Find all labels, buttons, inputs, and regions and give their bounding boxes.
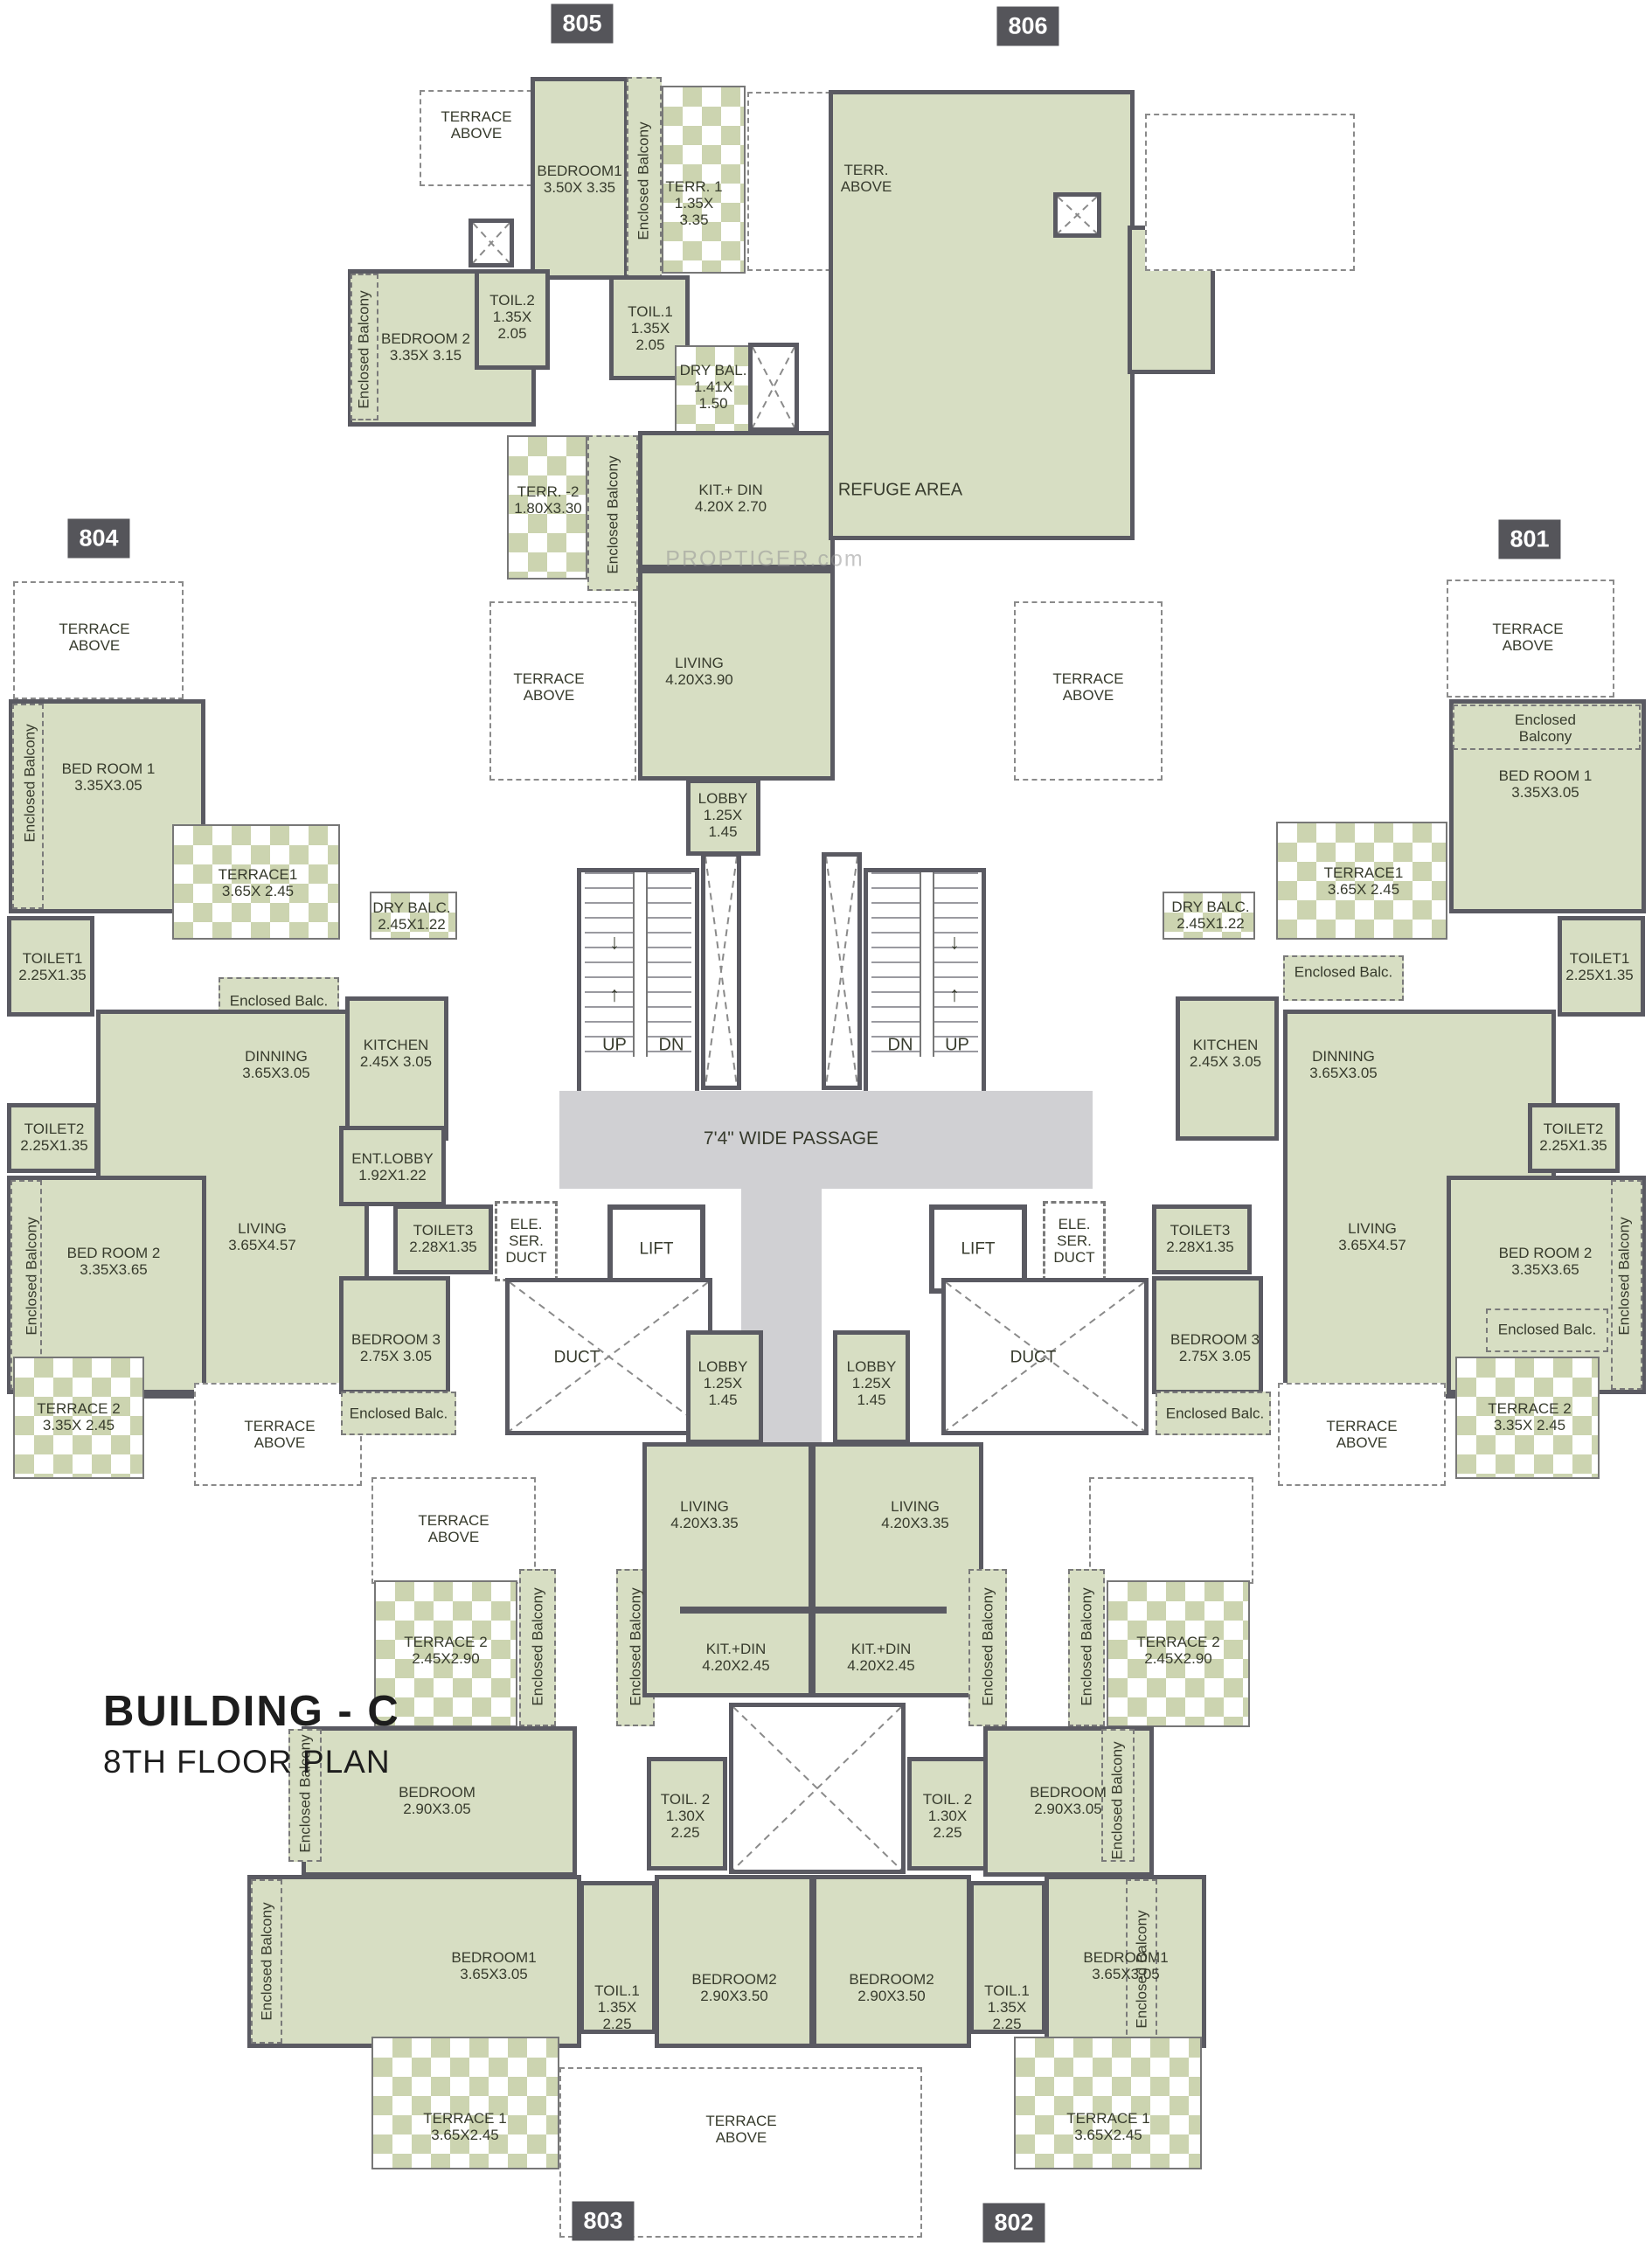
- label-kitchen: KITCHEN 2.45X 3.05: [1190, 1037, 1261, 1070]
- label-toilet3: TOILET3 2.28X1.35: [1166, 1222, 1234, 1255]
- label-terrace-1: TERRACE 1 3.65X2.45: [423, 2110, 506, 2143]
- label-lobby: LOBBY 1.25X 1.45: [698, 1358, 748, 1409]
- refuge-area: [829, 90, 1135, 540]
- label-terrace1: TERRACE1 3.65X 2.45: [1324, 864, 1404, 898]
- wall-segment: [680, 1607, 947, 1614]
- duct-shaft: [1053, 192, 1101, 238]
- label-toil-1: TOIL.1 1.35X 2.25: [984, 1982, 1030, 2033]
- unit-badge-803: 803: [572, 2202, 634, 2241]
- label-toil-1: TOIL.1 1.35X 2.25: [594, 1982, 640, 2033]
- label-duct: DUCT: [1010, 1348, 1057, 1366]
- label-toilet1: TOILET1 2.25X1.35: [1565, 950, 1634, 983]
- label-terr-1: TERR. 1 1.35X 3.35: [665, 178, 722, 229]
- label-refuge-area: REFUGE AREA: [838, 481, 962, 501]
- plan-subtitle: 8TH FLOOR PLAN: [103, 1744, 391, 1780]
- label-terrace: TERRACE ABOVE: [1492, 621, 1563, 654]
- label-enclosed-balcony: Enclosed Balcony: [258, 1902, 274, 2020]
- unit-badge-804: 804: [67, 519, 129, 559]
- label-terrace: TERRACE ABOVE: [441, 108, 511, 142]
- label-bed-room-2: BED ROOM 2 3.35X3.65: [1499, 1245, 1593, 1278]
- label-enclosed-balc-: Enclosed Balc.: [1166, 1405, 1264, 1421]
- label-up: UP: [602, 1036, 627, 1056]
- label-enclosed-balc-: Enclosed Balc.: [1498, 1321, 1596, 1337]
- label-bedroom1: BEDROOM1 3.65X3.05: [1083, 1949, 1168, 1982]
- label-dinning: DINNING 3.65X3.05: [242, 1048, 310, 1081]
- label--: ↑: [609, 982, 620, 1006]
- label-enclosed-balcony: Enclosed Balcony: [1492, 711, 1599, 745]
- label-terrace: TERRACE ABOVE: [705, 2113, 776, 2146]
- label-living: LIVING 3.65X4.57: [228, 1220, 296, 1253]
- label-living: LIVING 4.20X3.35: [881, 1498, 949, 1531]
- label-bedroom-3: BEDROOM 3 2.75X 3.05: [1170, 1331, 1260, 1364]
- room-bedroom2-803: [655, 1875, 814, 2048]
- label-toilet2: TOILET2 2.25X1.35: [20, 1121, 88, 1154]
- label-bedroom1: BEDROOM1 3.65X3.05: [451, 1949, 536, 1982]
- label--: ↓: [949, 930, 960, 954]
- label-bed-room-2: BED ROOM 2 3.35X3.65: [67, 1245, 161, 1278]
- label-living: LIVING 4.20X3.35: [670, 1498, 739, 1531]
- label-kitchen: KITCHEN 2.45X 3.05: [360, 1037, 432, 1070]
- label--: ↑: [949, 982, 960, 1006]
- label-terr-2: TERR. -2 1.80X3.30: [514, 483, 582, 517]
- label-terrace-2: TERRACE 2 3.35X 2.45: [1488, 1400, 1571, 1433]
- label-living: LIVING 4.20X3.90: [665, 655, 733, 688]
- label-ele-: ELE. SER. DUCT: [1053, 1216, 1094, 1267]
- label-dn: DN: [659, 1036, 684, 1056]
- label-toil-1: TOIL.1 1.35X 2.05: [628, 303, 673, 354]
- unit-badge-802: 802: [982, 2204, 1045, 2243]
- label-ele-: ELE. SER. DUCT: [505, 1216, 546, 1267]
- label-7-4-wide-passage: 7'4" WIDE PASSAGE: [704, 1128, 878, 1149]
- label-terrace: TERRACE ABOVE: [244, 1418, 315, 1451]
- label-bedroom1: BEDROOM1 3.50X 3.35: [537, 163, 621, 196]
- label-enclosed-balcony: Enclosed Balcony: [1078, 1587, 1094, 1705]
- duct-shaft: [822, 852, 862, 1090]
- terrace-1-803: [371, 2037, 559, 2169]
- label-terrace-2: TERRACE 2 2.45X2.90: [1136, 1634, 1219, 1667]
- terrace-above-area: [1145, 114, 1355, 271]
- label-bed-room-1: BED ROOM 1 3.35X3.05: [62, 760, 156, 794]
- label-bedroom2: BEDROOM2 2.90X3.50: [849, 1971, 934, 2004]
- label-lobby: LOBBY 1.25X 1.45: [847, 1358, 897, 1409]
- label-terrace: TERRACE ABOVE: [59, 621, 129, 654]
- label-living: LIVING 3.65X4.57: [1338, 1220, 1406, 1253]
- label-enclosed-balcony: Enclosed Balcony: [604, 455, 621, 573]
- label-terrace1: TERRACE1 3.65X 2.45: [219, 866, 298, 899]
- label-enclosed-balc-: Enclosed Balc.: [350, 1405, 448, 1421]
- label-dry-balc-: DRY BALC. 2.45X1.22: [1171, 899, 1249, 932]
- terrace-above-area: [1089, 1477, 1253, 1584]
- label-ent-lobby: ENT.LOBBY 1.92X1.22: [351, 1150, 434, 1184]
- label-enclosed-balc-: Enclosed Balc.: [230, 992, 328, 1009]
- label-enclosed-balcony: Enclosed Balcony: [23, 1217, 39, 1335]
- label-enclosed-balcony: Enclosed Balcony: [1133, 1910, 1149, 2028]
- label-kit-din: KIT.+ DIN 4.20X 2.70: [695, 482, 767, 515]
- label--: ↓: [609, 930, 620, 954]
- label-terr-: TERR. ABOVE: [841, 162, 892, 195]
- label-terrace: TERRACE ABOVE: [1052, 670, 1123, 704]
- label-kit-din: KIT.+DIN 4.20X2.45: [847, 1641, 915, 1674]
- label-bedroom: BEDROOM 2.90X3.05: [399, 1784, 475, 1817]
- room-bedroom2-802: [812, 1875, 971, 2048]
- party-wall: [809, 1442, 816, 1697]
- label-terrace: TERRACE ABOVE: [1326, 1418, 1397, 1451]
- label-bedroom: BEDROOM 2.90X3.05: [1030, 1784, 1107, 1817]
- terrace-1-802: [1014, 2037, 1202, 2169]
- label-toilet1: TOILET1 2.25X1.35: [18, 950, 87, 983]
- label-terrace: TERRACE ABOVE: [513, 670, 584, 704]
- label-toilet3: TOILET3 2.28X1.35: [409, 1222, 477, 1255]
- unit-badge-806: 806: [996, 7, 1059, 46]
- label-enclosed-balcony: Enclosed Balcony: [1615, 1217, 1632, 1335]
- duct-shaft: [748, 343, 799, 432]
- label-enclosed-balcony: Enclosed Balcony: [979, 1587, 996, 1705]
- label-up: UP: [945, 1036, 969, 1056]
- label-enclosed-balcony: Enclosed Balcony: [529, 1587, 545, 1705]
- label-enclosed-balc-: Enclosed Balc.: [1295, 963, 1392, 980]
- label-bedroom-3: BEDROOM 3 2.75X 3.05: [351, 1331, 441, 1364]
- label-bedroom2: BEDROOM2 2.90X3.50: [691, 1971, 776, 2004]
- label-terrace-2: TERRACE 2 3.35X 2.45: [37, 1400, 120, 1433]
- label-lift: LIFT: [961, 1239, 995, 1258]
- label-dinning: DINNING 3.65X3.05: [1309, 1048, 1378, 1081]
- label-terrace: TERRACE ABOVE: [418, 1512, 489, 1545]
- label-toil-2: TOIL.2 1.35X 2.05: [489, 292, 535, 343]
- duct-shaft: [701, 852, 741, 1090]
- label-dry-balc-: DRY BALC. 2.45X1.22: [372, 899, 450, 933]
- duct-shaft: [729, 1703, 906, 1874]
- label-enclosed-balcony: Enclosed Balcony: [1108, 1741, 1125, 1859]
- plan-title: BUILDING - C: [103, 1687, 400, 1736]
- unit-badge-805: 805: [551, 4, 613, 44]
- unit-badge-801: 801: [1498, 520, 1560, 559]
- label-lift: LIFT: [639, 1239, 673, 1258]
- label-terrace-1: TERRACE 1 3.65X2.45: [1066, 2110, 1149, 2143]
- duct-shaft: [505, 1278, 712, 1435]
- label-enclosed-balcony: Enclosed Balcony: [21, 724, 38, 842]
- label-dry-bal-: DRY BAL. 1.41X 1.50: [680, 362, 747, 413]
- floor-plan-canvas: BUILDING - C 8TH FLOOR PLAN PROPTIGER.co…: [0, 0, 1652, 2249]
- label-toilet2: TOILET2 2.25X1.35: [1539, 1121, 1607, 1154]
- label-enclosed-balcony: Enclosed Balcony: [355, 290, 371, 408]
- watermark: PROPTIGER.com: [665, 547, 864, 573]
- label-kit-din: KIT.+DIN 4.20X2.45: [702, 1641, 770, 1674]
- label-duct: DUCT: [554, 1348, 600, 1366]
- label-terrace-2: TERRACE 2 2.45X2.90: [404, 1634, 487, 1667]
- label-enclosed-balcony: Enclosed Balcony: [627, 1587, 643, 1705]
- duct-shaft: [469, 219, 514, 267]
- label-toil-2: TOIL. 2 1.30X 2.25: [661, 1791, 710, 1842]
- label-dn: DN: [888, 1036, 913, 1056]
- label-bed-room-1: BED ROOM 1 3.35X3.05: [1499, 767, 1593, 801]
- label-lobby: LOBBY 1.25X 1.45: [698, 790, 748, 841]
- label-bedroom-2: BEDROOM 2 3.35X 3.15: [381, 330, 470, 364]
- label-enclosed-balcony: Enclosed Balcony: [635, 121, 651, 239]
- label-toil-2: TOIL. 2 1.30X 2.25: [923, 1791, 972, 1842]
